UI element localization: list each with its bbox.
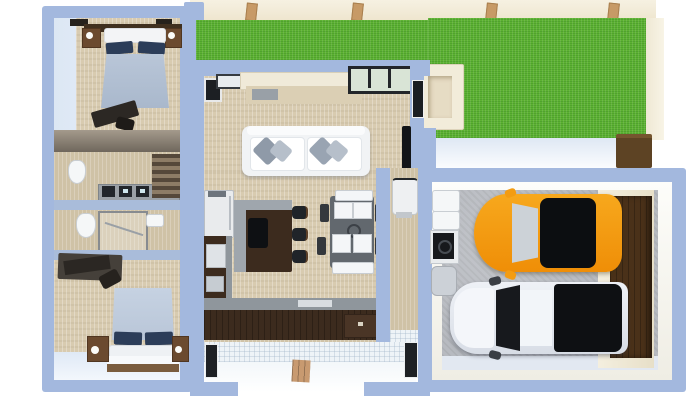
nightstand-lamp bbox=[91, 346, 99, 354]
chair-arm bbox=[320, 204, 329, 222]
roof-beam bbox=[245, 2, 258, 21]
tv bbox=[402, 126, 411, 174]
window bbox=[412, 80, 424, 118]
door-mat bbox=[291, 360, 310, 383]
fridge-vent bbox=[208, 191, 226, 197]
counter-bottom-top bbox=[204, 298, 378, 310]
chair-arm bbox=[317, 237, 326, 255]
vanity-sink-dark bbox=[102, 186, 115, 197]
interior-wall-band bbox=[54, 130, 180, 152]
bar-stool bbox=[292, 206, 308, 219]
window-mullion bbox=[368, 66, 371, 88]
bar-stool bbox=[292, 250, 308, 263]
cooktop bbox=[248, 218, 268, 248]
faucet bbox=[140, 189, 145, 193]
bed-headboard bbox=[107, 364, 179, 372]
planter-pit bbox=[428, 76, 452, 118]
dining-chair bbox=[332, 234, 351, 253]
toilet bbox=[76, 213, 96, 238]
kitchen-sink bbox=[206, 276, 224, 292]
speaker-cone bbox=[438, 240, 452, 254]
storage-shelf bbox=[432, 211, 460, 230]
dining-chair bbox=[334, 202, 353, 219]
sofa-back bbox=[247, 126, 365, 135]
bed-blanket bbox=[101, 54, 169, 108]
island-counter-side bbox=[234, 200, 246, 272]
pickup-bed-cover bbox=[554, 284, 622, 352]
storage-shelf bbox=[432, 190, 460, 212]
suv-roof bbox=[540, 198, 596, 268]
nightstand-lamp bbox=[168, 32, 175, 39]
bed-pillow-navy bbox=[114, 332, 142, 346]
shower-enclosure bbox=[98, 211, 148, 253]
chimney-box bbox=[616, 134, 652, 168]
dining-chair bbox=[353, 202, 372, 219]
closet-shelves bbox=[152, 154, 180, 198]
dining-chair bbox=[335, 190, 373, 201]
lawn-bottom-wall bbox=[428, 138, 646, 168]
bed-pillow-navy bbox=[138, 41, 166, 55]
fridge-handle bbox=[229, 196, 231, 230]
shop-vac bbox=[431, 266, 457, 296]
living-left-wall bbox=[190, 60, 204, 384]
window-mullion bbox=[388, 66, 391, 88]
pickup-cab-roof bbox=[520, 290, 552, 346]
bed-pillow-navy bbox=[106, 41, 134, 55]
bathroom-sink bbox=[146, 214, 164, 227]
faucet bbox=[123, 189, 128, 193]
water-heater bbox=[392, 178, 418, 215]
porch-door bbox=[205, 344, 218, 378]
porch-wall-left bbox=[190, 382, 238, 396]
nightstand-lamp bbox=[86, 32, 93, 39]
hallway-left-wall bbox=[376, 168, 390, 344]
lawn-right-wall bbox=[646, 18, 664, 140]
roof-beam bbox=[351, 2, 364, 21]
console-inset bbox=[252, 89, 278, 100]
dining-chair bbox=[353, 234, 372, 253]
floorplan-canvas bbox=[0, 0, 700, 403]
toilet bbox=[68, 160, 86, 184]
cabinet-knob bbox=[358, 322, 363, 326]
pickup-windshield bbox=[496, 285, 520, 351]
wall-connector bbox=[424, 128, 436, 170]
dishwasher bbox=[206, 244, 226, 268]
bar-stool bbox=[292, 228, 308, 241]
dining-chair bbox=[332, 262, 374, 274]
interior-wall-band bbox=[54, 200, 180, 210]
porch-tile-wall bbox=[204, 342, 416, 362]
suv-windshield bbox=[512, 199, 538, 267]
nightstand-lamp bbox=[175, 346, 182, 353]
pickup-hood bbox=[454, 288, 494, 348]
water-heater-base bbox=[396, 212, 412, 218]
bed-pillows-white bbox=[104, 28, 166, 43]
porch-door bbox=[404, 342, 418, 378]
small-cabinet bbox=[344, 314, 380, 338]
bed-pillow-navy bbox=[145, 332, 173, 346]
counter-controls bbox=[298, 300, 332, 307]
window-bank bbox=[348, 66, 414, 94]
